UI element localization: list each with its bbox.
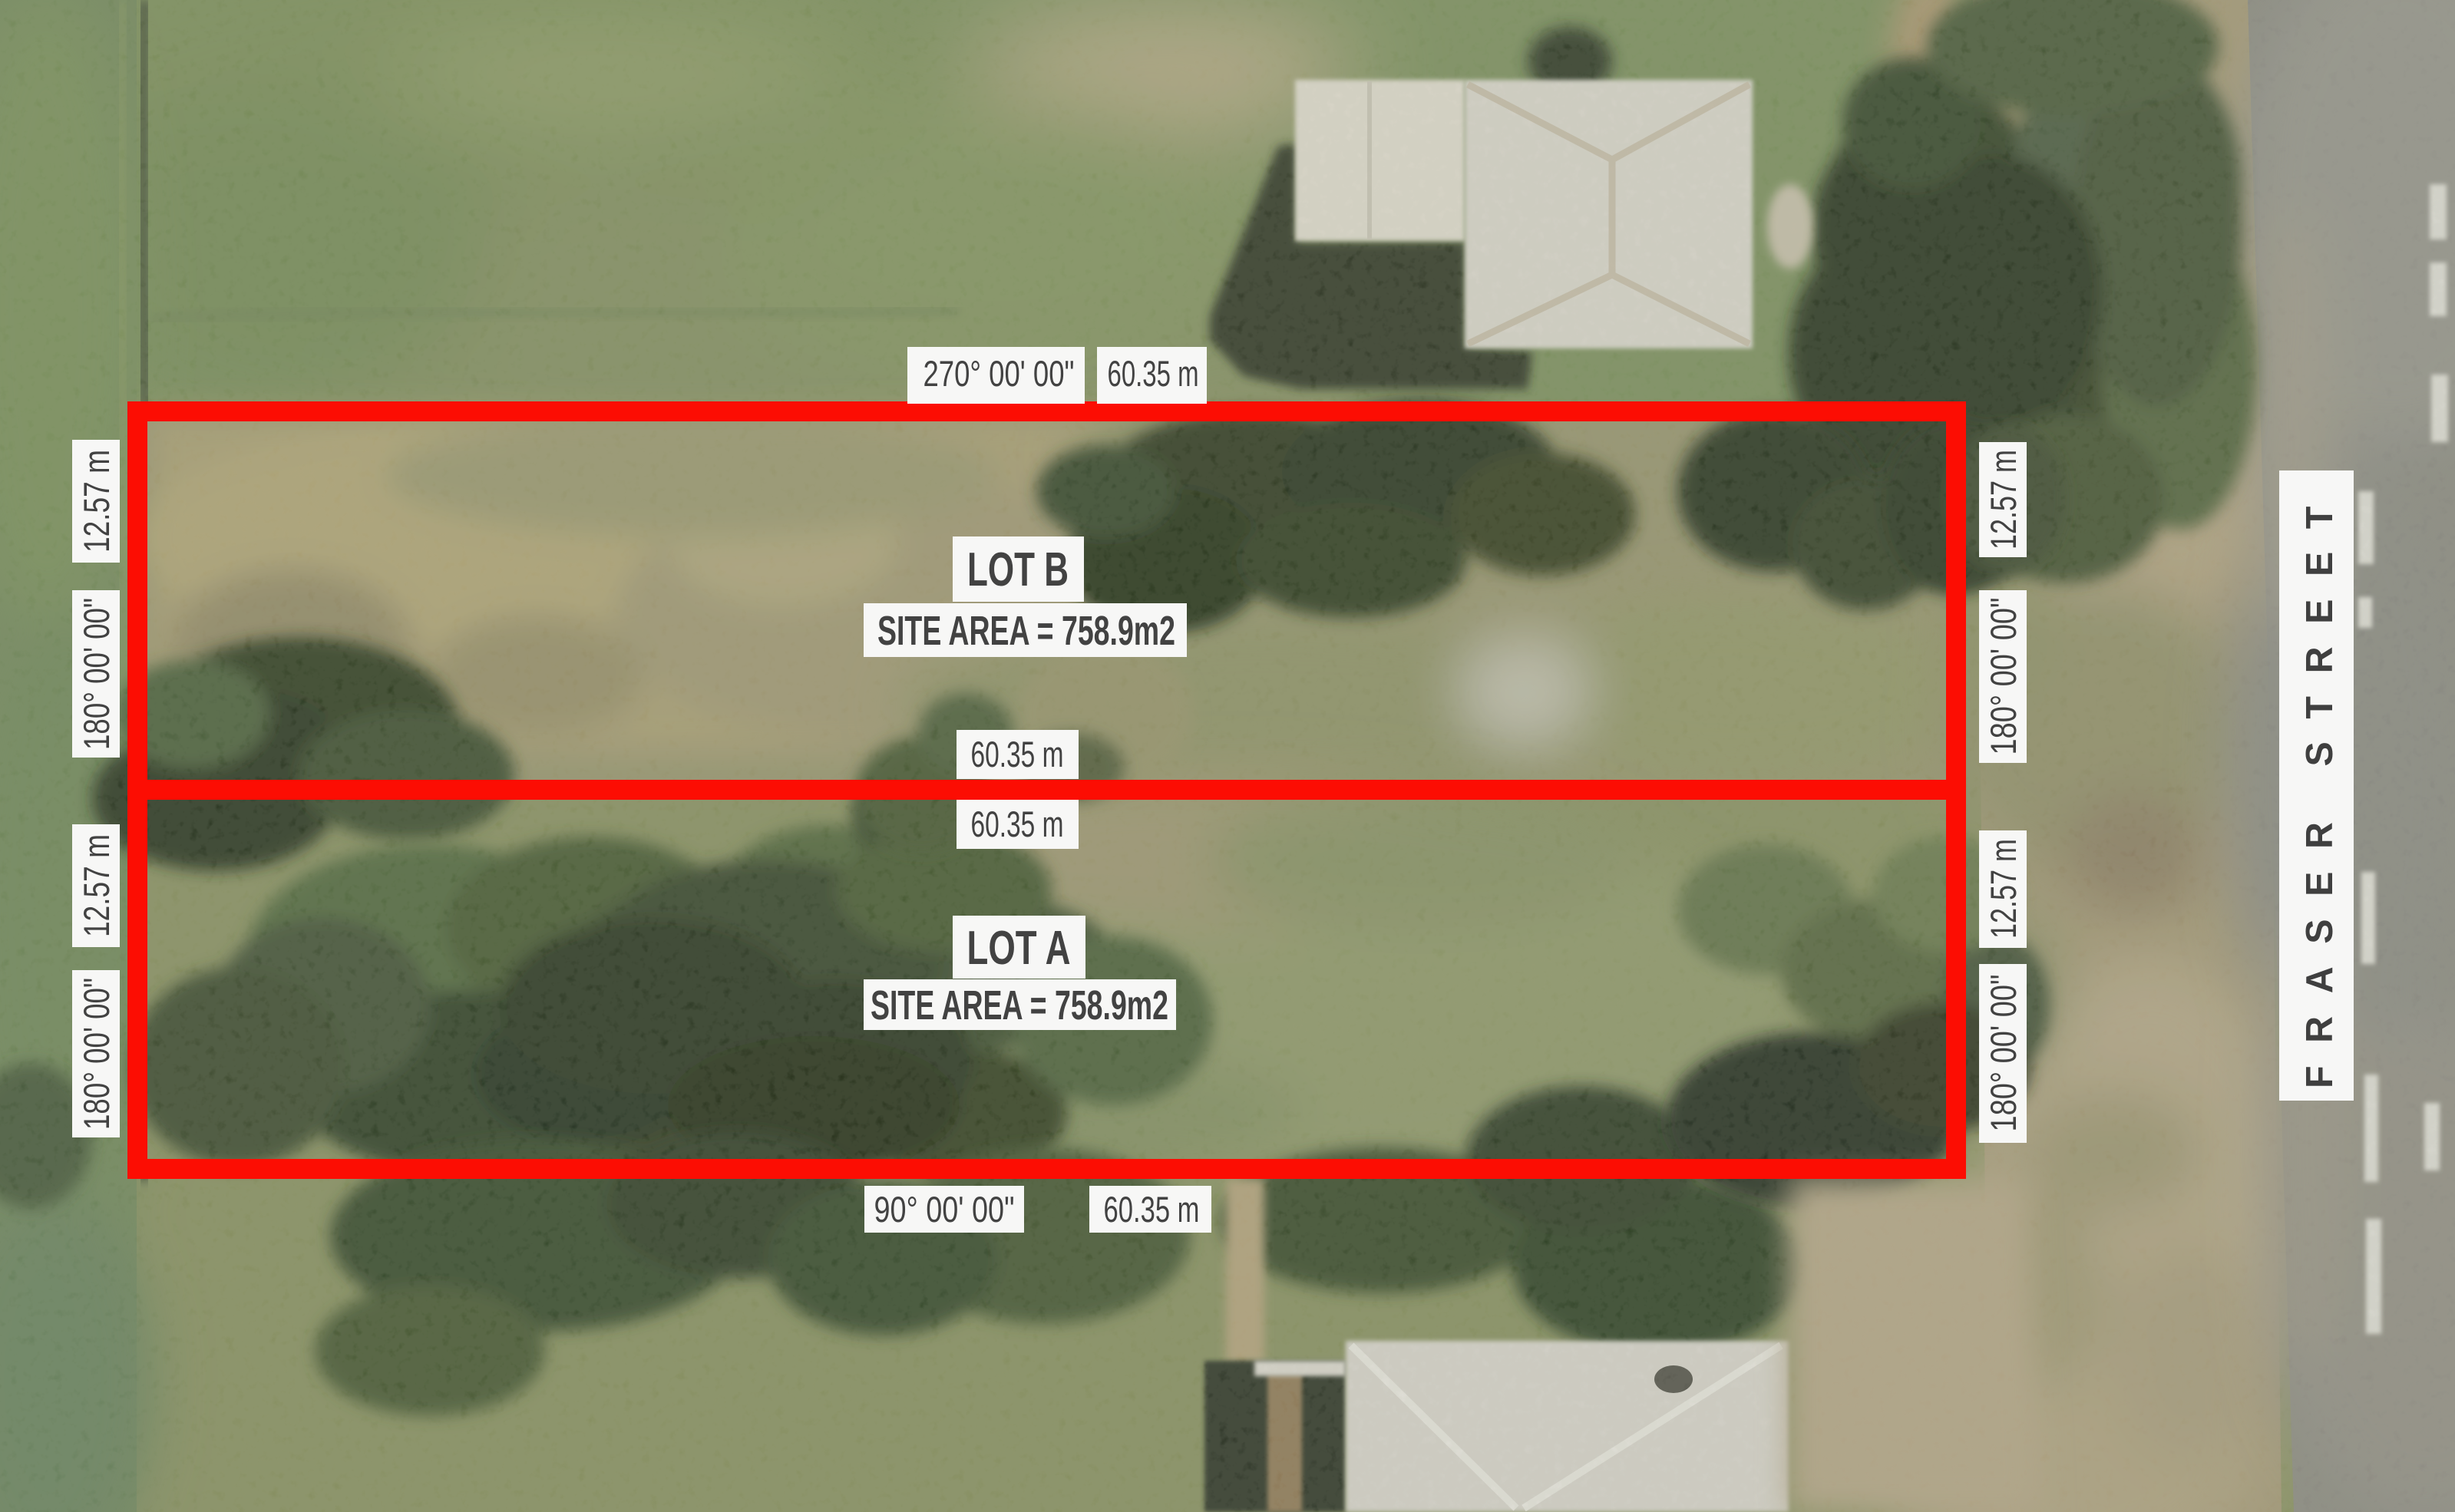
svg-text:270° 00' 00": 270° 00' 00": [924, 353, 1075, 394]
svg-text:60.35 m: 60.35 m: [1104, 1189, 1200, 1230]
svg-text:12.57 m: 12.57 m: [76, 834, 117, 937]
svg-text:180° 00' 00": 180° 00' 00": [1983, 975, 2024, 1132]
svg-text:12.57 m: 12.57 m: [76, 450, 117, 553]
svg-text:12.57 m: 12.57 m: [1983, 450, 2024, 550]
svg-text:60.35 m: 60.35 m: [1108, 353, 1199, 394]
svg-text:180° 00' 00": 180° 00' 00": [1983, 598, 2024, 755]
svg-text:60.35 m: 60.35 m: [971, 734, 1064, 774]
svg-text:90° 00' 00": 90° 00' 00": [874, 1189, 1015, 1230]
svg-text:180° 00' 00": 180° 00' 00": [76, 978, 117, 1130]
svg-text:60.35 m: 60.35 m: [971, 804, 1064, 844]
svg-text:12.57 m: 12.57 m: [1983, 839, 2024, 939]
svg-text:SITE AREA = 758.9m2: SITE AREA = 758.9m2: [877, 608, 1175, 654]
svg-text:FRASER STREET: FRASER STREET: [2299, 484, 2341, 1088]
svg-text:180° 00' 00": 180° 00' 00": [76, 598, 117, 750]
svg-text:LOT B: LOT B: [967, 543, 1069, 596]
svg-text:LOT A: LOT A: [967, 922, 1071, 975]
svg-text:SITE AREA = 758.9m2: SITE AREA = 758.9m2: [871, 982, 1168, 1028]
